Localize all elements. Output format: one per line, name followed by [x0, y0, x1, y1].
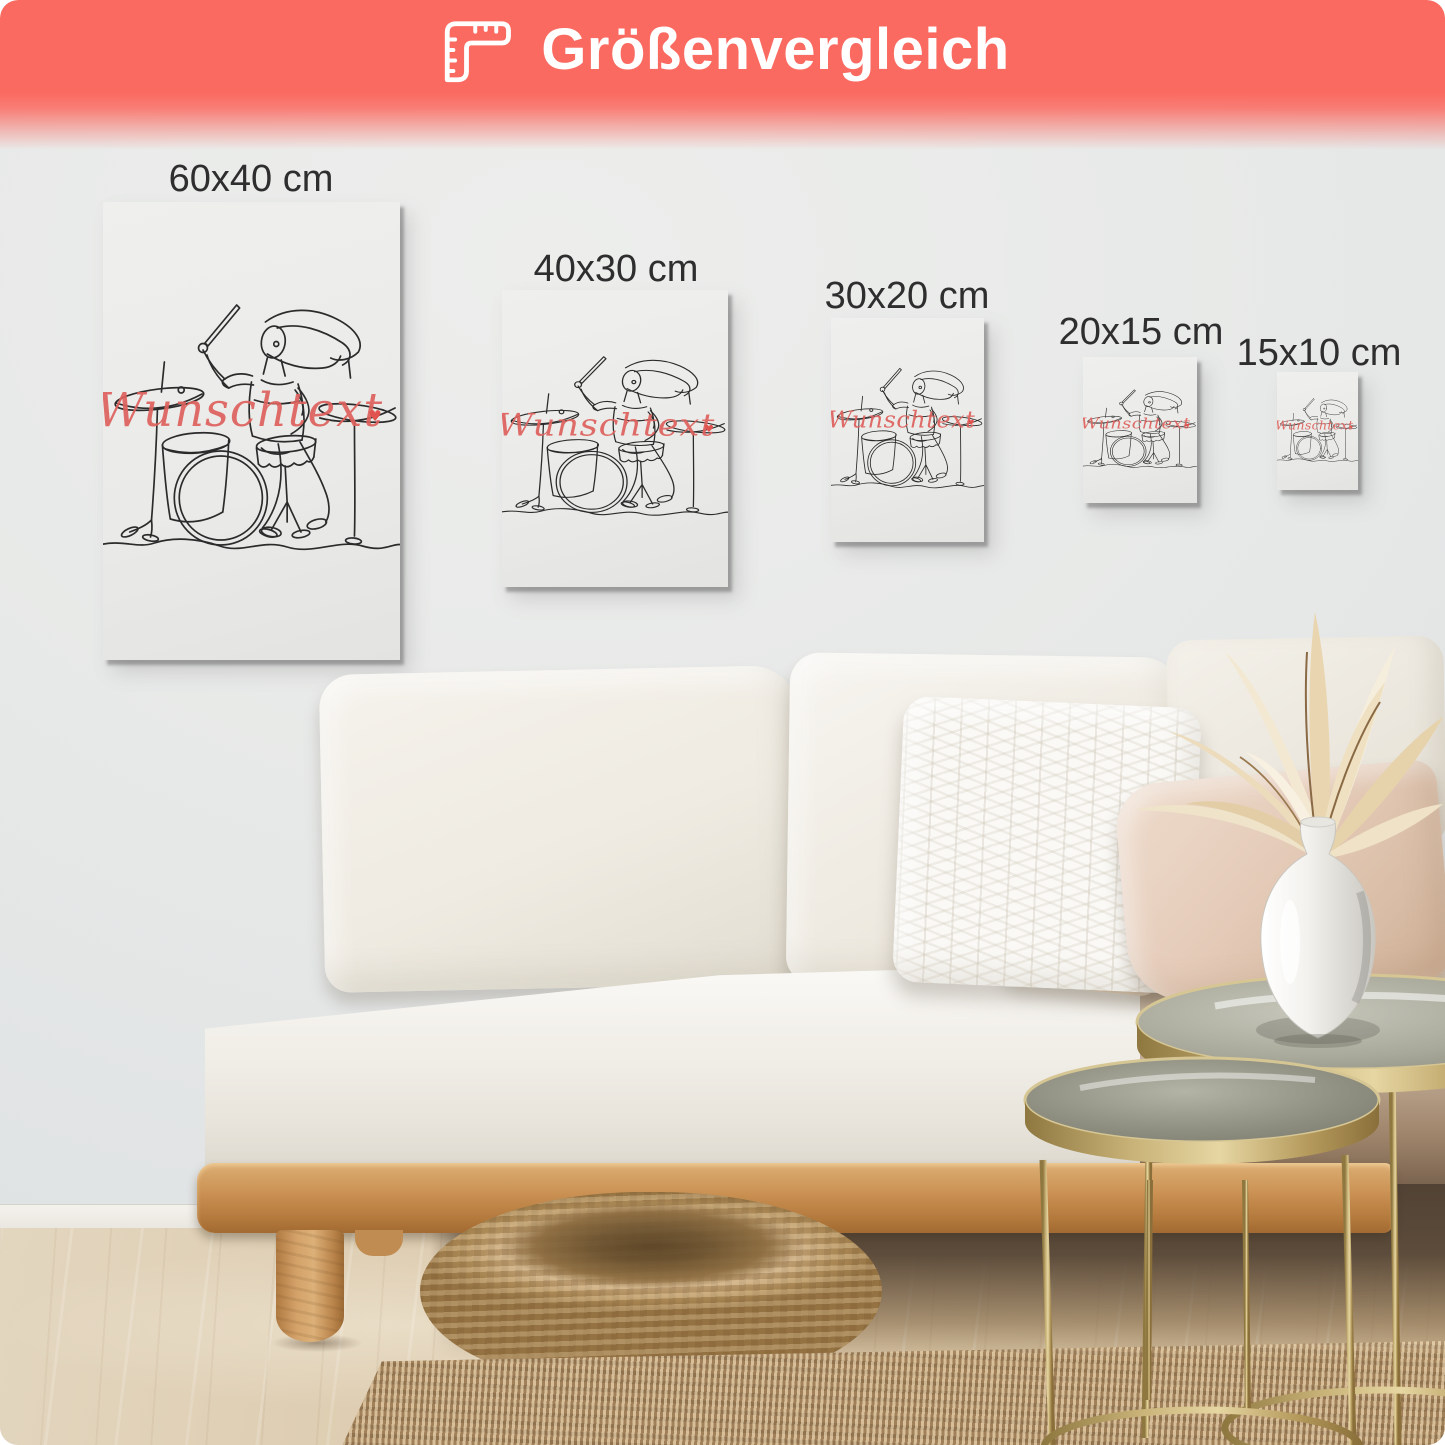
size-label-20x15: 20x15 cm — [1059, 313, 1224, 351]
drummer-line-art — [1083, 357, 1197, 503]
drummer-line-art — [502, 290, 728, 587]
poster-60x40 — [103, 202, 400, 660]
size-label-30x20: 30x20 cm — [825, 277, 990, 315]
pampas-leaves — [1135, 612, 1443, 860]
sofa-leg-front — [276, 1230, 344, 1342]
drummer-line-art — [831, 318, 984, 542]
poster-30x20 — [831, 318, 984, 542]
size-label-40x30: 40x30 cm — [534, 250, 699, 288]
ruler-icon — [435, 12, 519, 88]
size-comparison-banner: Größenvergleich — [0, 0, 1445, 150]
back-cushion-left — [319, 665, 804, 993]
poster-20x15 — [1083, 357, 1197, 503]
size-label-60x40: 60x40 cm — [169, 160, 334, 198]
side-table-small — [1025, 1058, 1379, 1445]
sofa-leg-back — [355, 1230, 403, 1256]
size-label-15x10: 15x10 cm — [1237, 334, 1402, 372]
banner-title: Größenvergleich — [541, 21, 1009, 79]
poster-15x10 — [1277, 372, 1358, 490]
poster-40x30 — [502, 290, 728, 587]
white-vase — [1261, 817, 1375, 1048]
banner-content: Größenvergleich — [435, 12, 1009, 88]
vase-with-dried-leaves — [1075, 592, 1445, 1062]
size-comparison-image: Wunschtext ♥ 60x40 cm 40x30 cm 30x20 cm … — [0, 0, 1445, 1445]
drummer-line-art — [1277, 372, 1358, 490]
drummer-line-art — [103, 202, 400, 660]
